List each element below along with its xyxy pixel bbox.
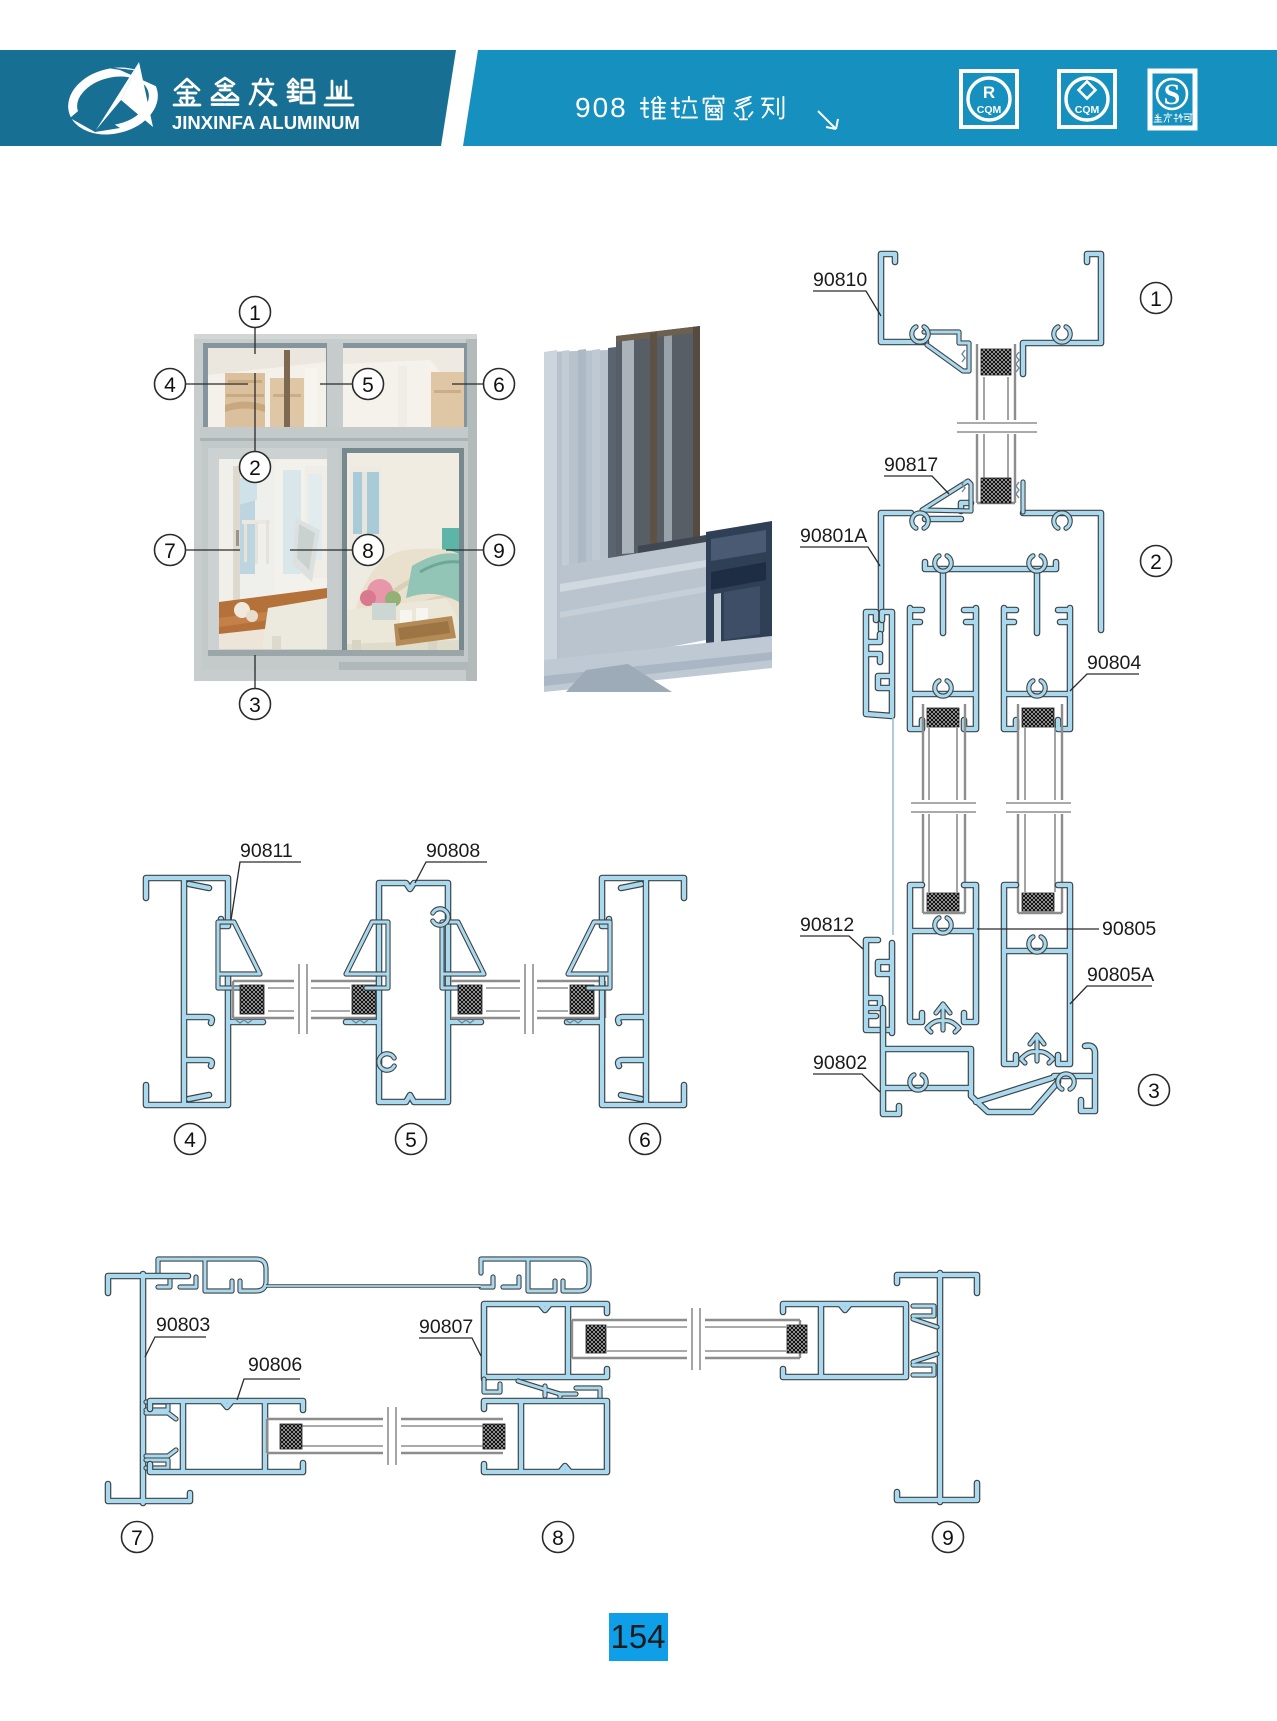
svg-text:CQM: CQM (977, 104, 1002, 116)
svg-text:9: 9 (942, 1527, 954, 1550)
svg-text:90806: 90806 (248, 1354, 302, 1376)
svg-text:90804: 90804 (1087, 652, 1141, 674)
svg-text:4: 4 (164, 374, 176, 397)
svg-text:2: 2 (1150, 551, 1162, 574)
svg-text:5: 5 (362, 374, 374, 397)
svg-text:4: 4 (184, 1129, 196, 1152)
svg-text:90810: 90810 (813, 269, 867, 291)
svg-text:6: 6 (493, 374, 505, 397)
svg-text:90808: 90808 (426, 840, 480, 862)
svg-text:1: 1 (249, 302, 261, 325)
svg-text:CQM: CQM (1075, 104, 1100, 116)
svg-text:3: 3 (249, 694, 261, 717)
svg-text:7: 7 (131, 1527, 143, 1550)
svg-text:908: 908 (575, 92, 628, 123)
svg-text:90817: 90817 (884, 454, 938, 476)
svg-text:90805: 90805 (1102, 918, 1156, 940)
svg-text:6: 6 (639, 1129, 651, 1152)
svg-text:3: 3 (1148, 1080, 1160, 1103)
svg-text:7: 7 (164, 540, 176, 563)
svg-text:JINXINFA ALUMINUM: JINXINFA ALUMINUM (172, 112, 360, 133)
svg-text:2: 2 (249, 457, 261, 480)
svg-text:5: 5 (405, 1129, 417, 1152)
svg-text:90811: 90811 (240, 840, 293, 862)
svg-text:8: 8 (362, 540, 374, 563)
svg-text:R: R (983, 83, 995, 102)
svg-text:154: 154 (610, 1618, 665, 1655)
svg-text:9: 9 (493, 540, 505, 563)
svg-text:90805A: 90805A (1087, 964, 1154, 986)
svg-text:1: 1 (1150, 288, 1162, 311)
svg-text:90802: 90802 (813, 1052, 867, 1074)
svg-text:S: S (1164, 78, 1181, 111)
svg-text:90812: 90812 (800, 914, 854, 936)
svg-text:90807: 90807 (419, 1316, 473, 1338)
svg-text:8: 8 (552, 1527, 564, 1550)
svg-text:90801A: 90801A (800, 525, 867, 547)
svg-text:90803: 90803 (156, 1314, 210, 1336)
